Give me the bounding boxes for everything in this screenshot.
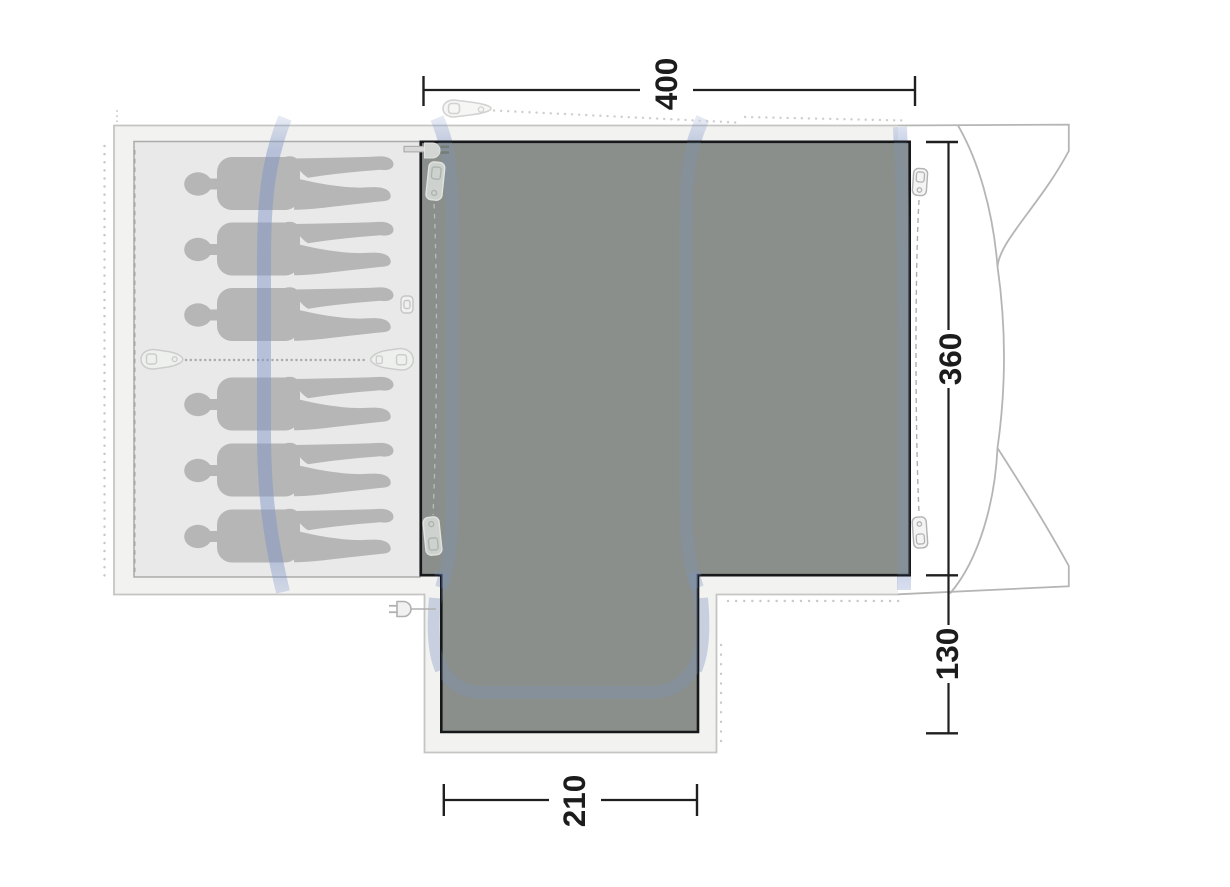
svg-text:360: 360 (932, 333, 968, 386)
svg-text:130: 130 (929, 628, 965, 681)
svg-text:210: 210 (556, 775, 592, 828)
svg-text:400: 400 (648, 58, 684, 111)
